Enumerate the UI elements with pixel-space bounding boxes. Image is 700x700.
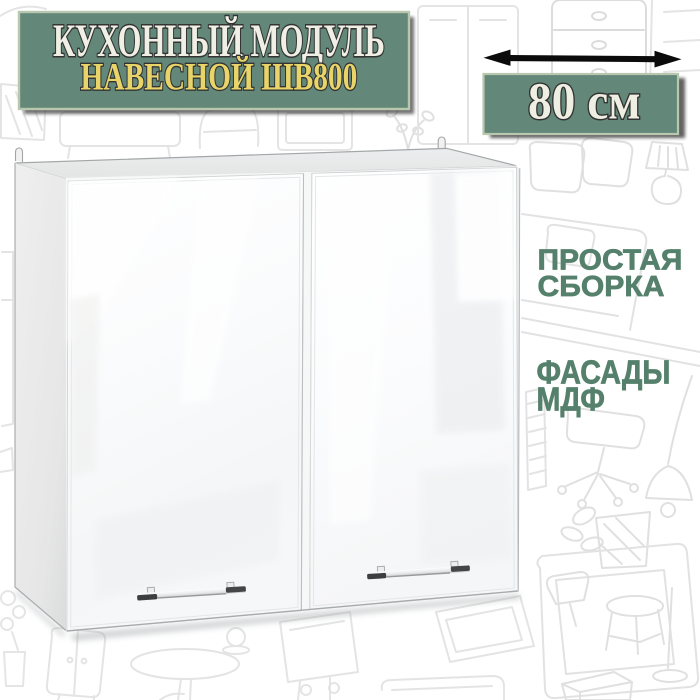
svg-text:МДФ: МДФ [537,381,605,418]
svg-text:СБОРКА: СБОРКА [538,270,665,302]
svg-text:80 см: 80 см [528,73,640,130]
svg-text:НАВЕСНОЙ ШВ800: НАВЕСНОЙ ШВ800 [81,56,358,99]
